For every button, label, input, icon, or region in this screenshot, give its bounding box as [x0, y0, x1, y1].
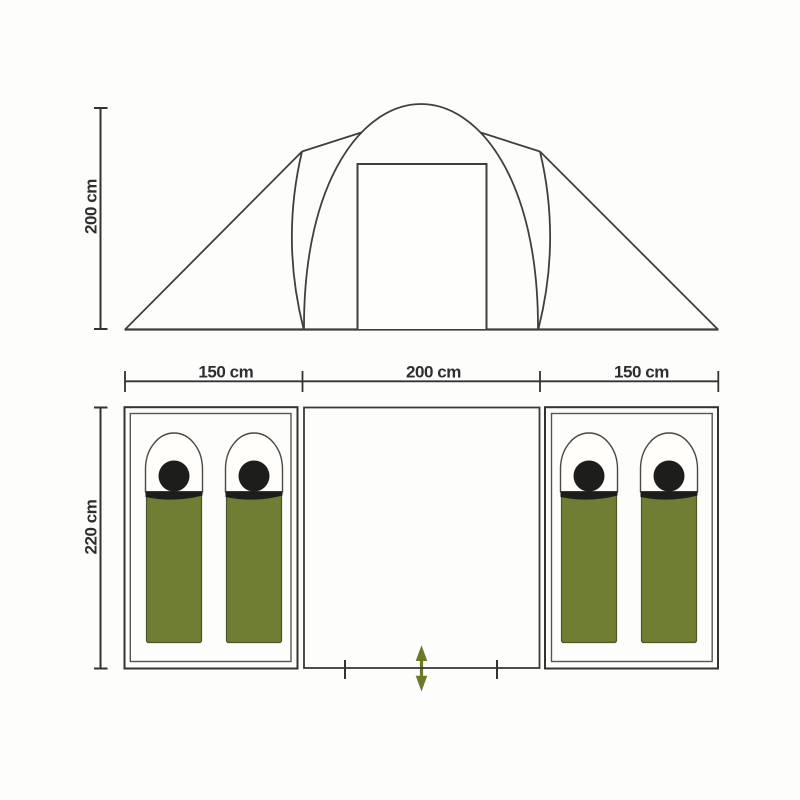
svg-text:200 cm: 200 cm — [406, 363, 461, 382]
svg-text:200 cm: 200 cm — [82, 179, 101, 234]
svg-text:220 cm: 220 cm — [82, 499, 101, 554]
svg-text:150 cm: 150 cm — [198, 363, 253, 382]
svg-text:150 cm: 150 cm — [614, 363, 669, 382]
